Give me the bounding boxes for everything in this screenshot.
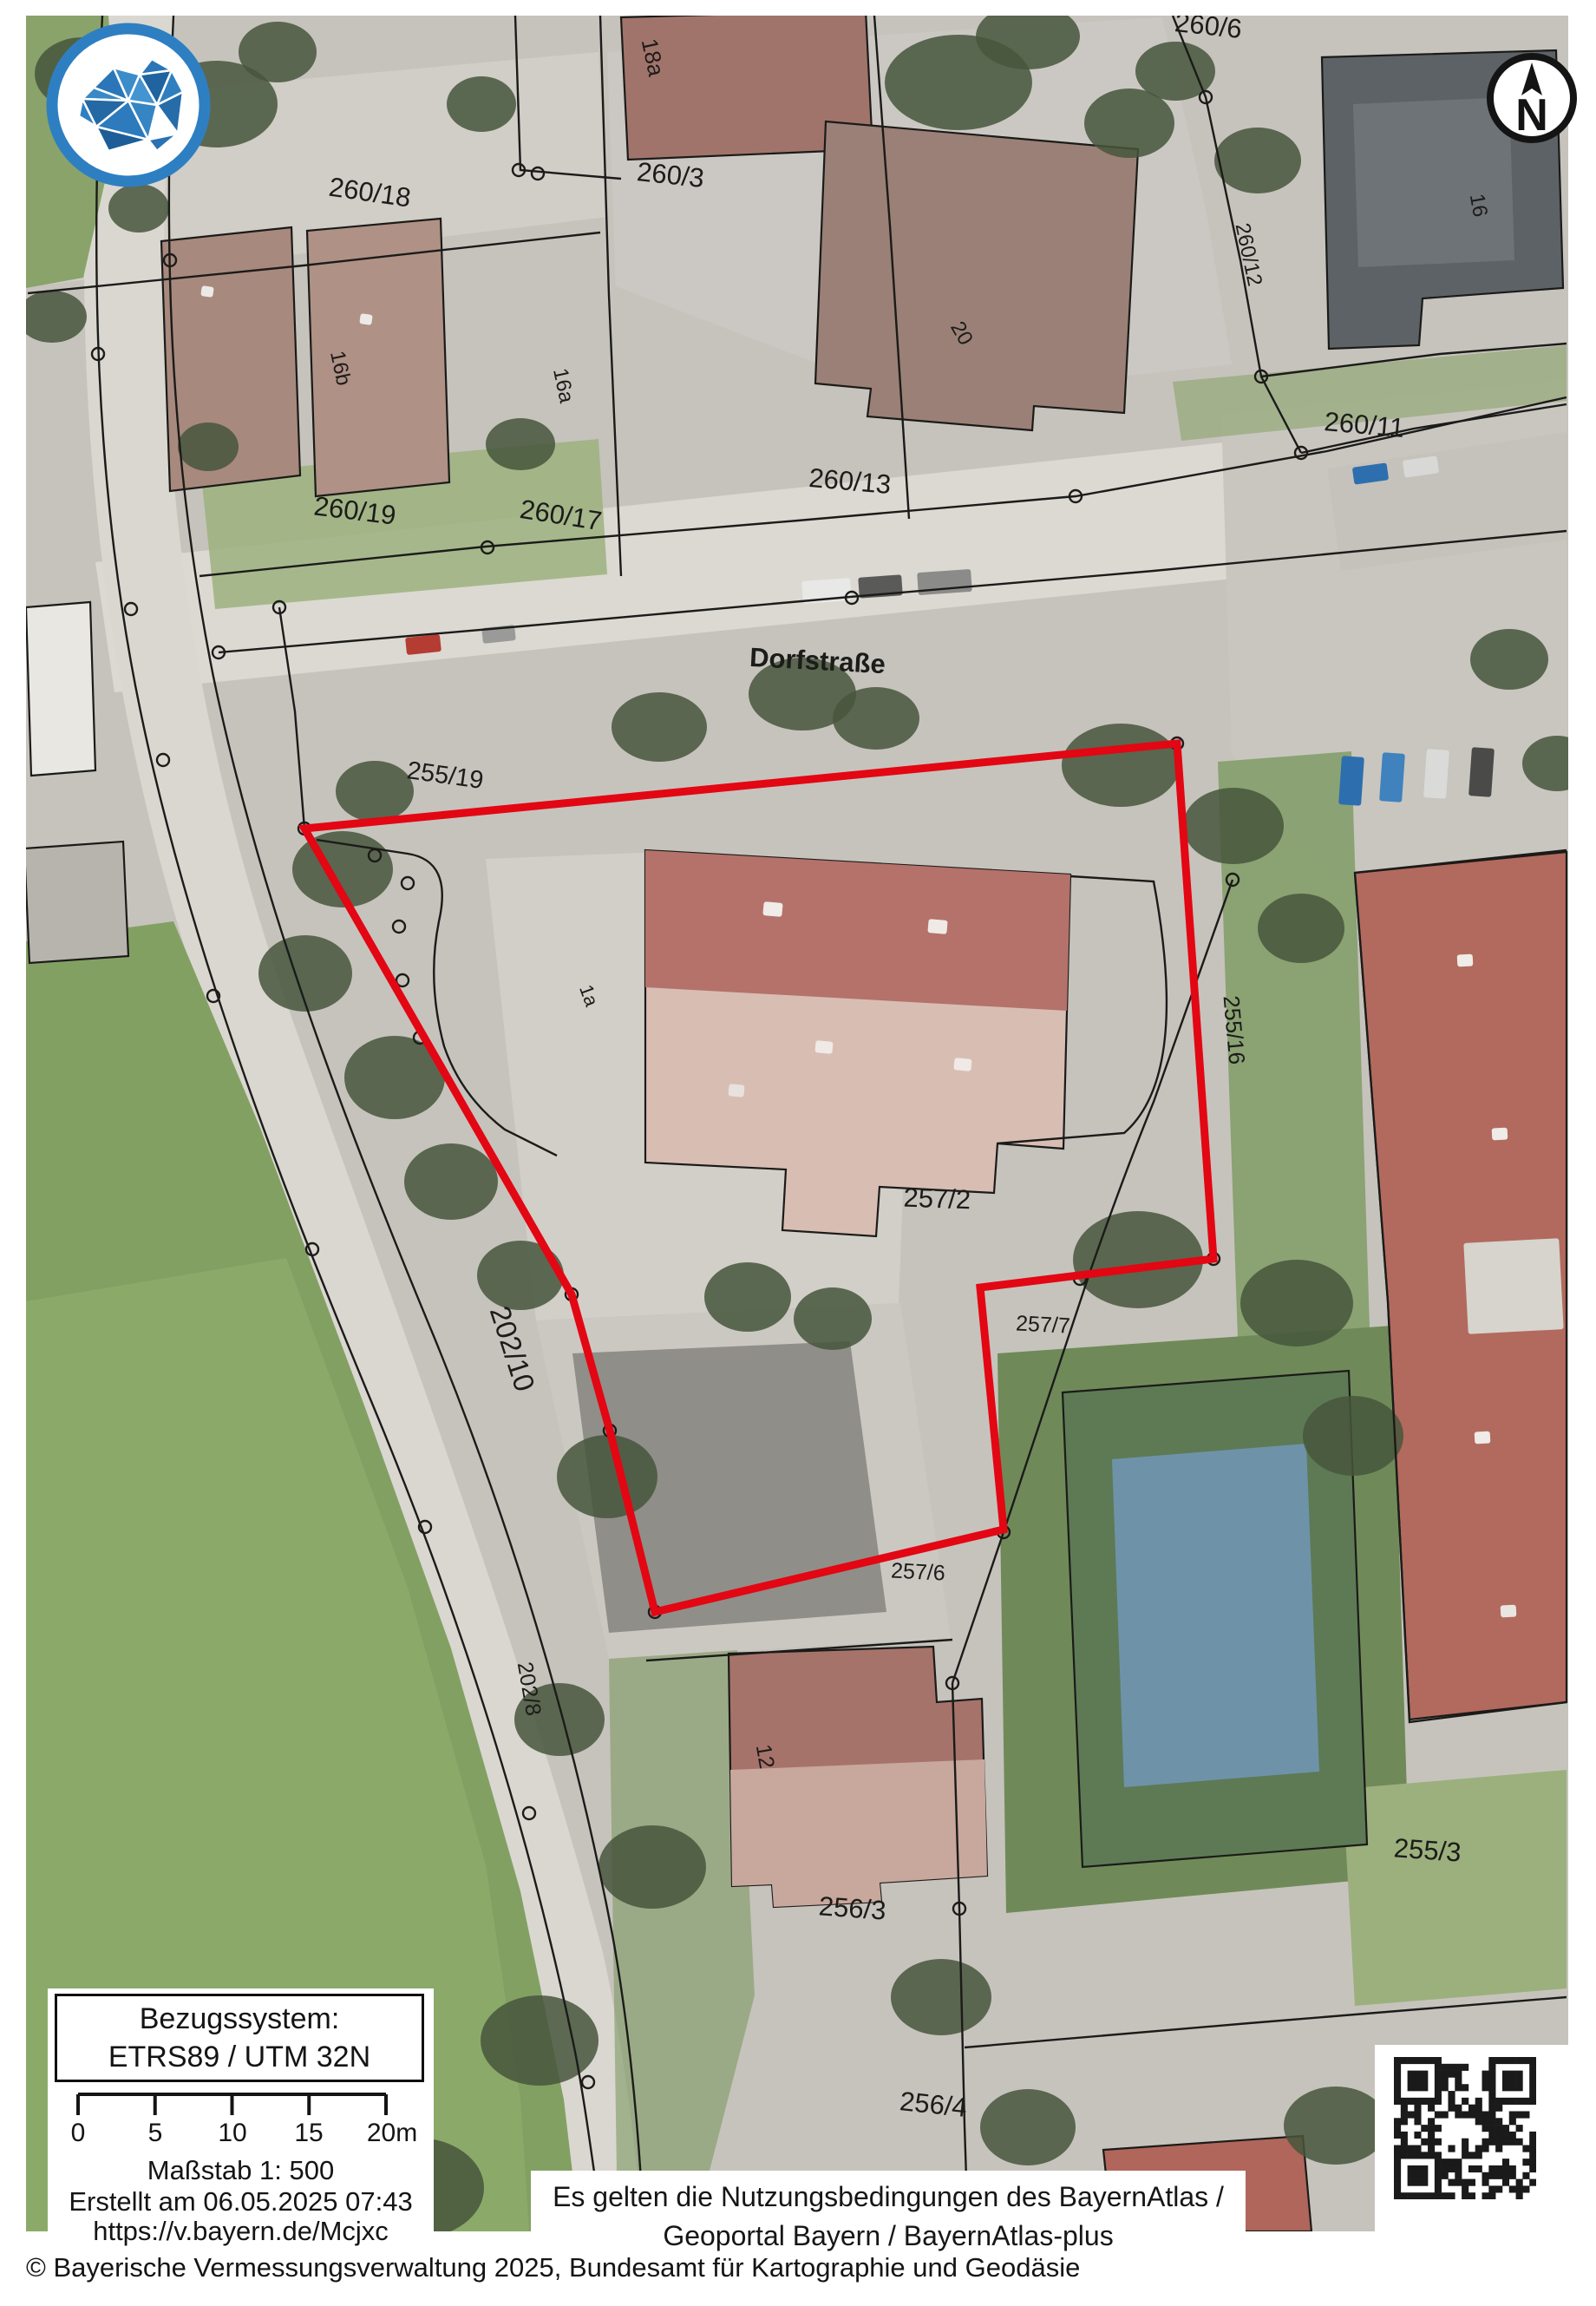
scale-bar: [48, 2089, 434, 2120]
north-arrow: N: [1484, 50, 1580, 146]
aerial-map: 260/18260/318a260/6260/12260/1116260/192…: [26, 16, 1568, 2231]
parcel-label: 257/6: [890, 1558, 945, 1585]
map-legend: Bezugssystem: ETRS89 / UTM 32N 0 5 10 15…: [48, 1988, 434, 2242]
terms-note: Es gelten die Nutzungsbedingungen des Ba…: [531, 2171, 1246, 2257]
parcel-label: 12: [751, 1742, 779, 1770]
scale-tick-5: 5: [148, 2119, 163, 2148]
parcel-label: 255/3: [1393, 1832, 1462, 1867]
attribution-line: © Bayerische Vermessungsverwaltung 2025,…: [26, 2252, 1080, 2283]
reference-system-box: Bezugssystem: ETRS89 / UTM 32N: [55, 1994, 424, 2082]
reference-system-value: ETRS89 / UTM 32N: [108, 2038, 370, 2076]
qr-panel: [1375, 2045, 1568, 2234]
map-print-page: 260/18260/318a260/6260/12260/1116260/192…: [0, 0, 1596, 2306]
scale-label: Maßstab 1: 500: [48, 2155, 434, 2186]
parcel-label: 257/7: [1015, 1311, 1070, 1338]
bayernatlas-logo: [46, 23, 211, 187]
reference-system-label: Bezugssystem:: [140, 2000, 340, 2038]
scale-tick-10: 10: [218, 2119, 246, 2148]
terms-line-2: Geoportal Bayern / BayernAtlas-plus: [531, 2217, 1246, 2256]
north-letter: N: [1515, 90, 1548, 141]
share-url: https://v.bayern.de/Mcjxc: [48, 2216, 434, 2247]
parcel-label: 16: [1465, 192, 1492, 219]
scale-tick-15: 15: [294, 2119, 323, 2148]
scale-tick-20m: 20m: [367, 2119, 417, 2148]
qr-code-icon: [1394, 2057, 1536, 2199]
parcel-label: 257/2: [903, 1182, 971, 1215]
scale-tick-0: 0: [71, 2119, 86, 2148]
bavaria-polygon-icon: [46, 23, 211, 187]
created-label: Erstellt am 06.05.2025 07:43: [48, 2186, 434, 2218]
parcel-label: 256/3: [818, 1890, 887, 1925]
terms-line-1: Es gelten die Nutzungsbedingungen des Ba…: [531, 2178, 1246, 2217]
